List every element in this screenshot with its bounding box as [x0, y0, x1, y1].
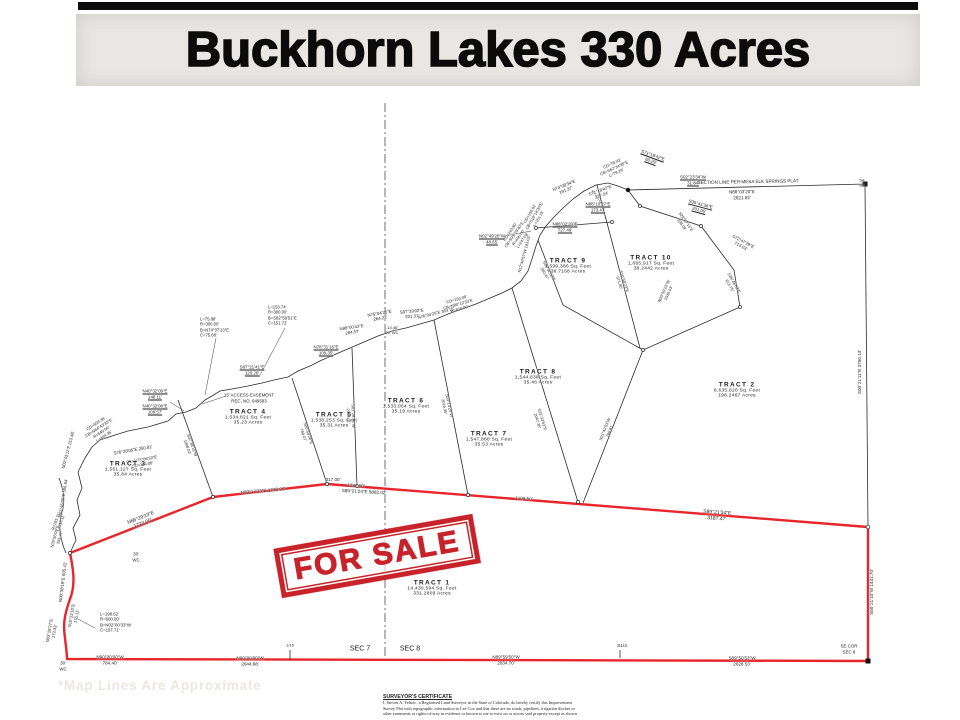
survey-label: 30' WC — [59, 661, 66, 672]
survey-label: 317.00' — [326, 477, 341, 483]
survey-label: 5|4 8|9 — [859, 178, 864, 187]
survey-label: 1/16 — [286, 644, 293, 649]
survey-label: S00°21'10"W 1441.70' — [869, 569, 875, 615]
tract-name: TRACT 1 — [407, 580, 456, 587]
survey-label: N88°10'27"E 173.47' — [586, 202, 611, 213]
survey-label: N88°03'20"E 2621.82' — [729, 189, 755, 201]
survey-label: L=153.74' R=300.00' B=S82°59'51"E C=151.… — [268, 305, 297, 326]
tract-label: TRACT 81,544,838 Sq. Feet35.46 Acres — [515, 369, 561, 386]
survey-label: N88°02'20"E 727.49' — [553, 222, 578, 233]
tract-label: TRACT 71,547,888 Sq. Feet35.53 Acres — [466, 431, 512, 448]
tract-detail: 35.19 Acres — [383, 410, 429, 415]
survey-label: SEC 8 — [400, 646, 420, 655]
tract-label: TRACT 61,533,054 Sq. Feet35.19 Acres — [383, 398, 429, 415]
survey-label: N90°00'00"W 2644.88' — [236, 655, 263, 666]
tract-name: TRACT 8 — [515, 369, 561, 376]
survey-label: 30' WC — [132, 552, 139, 563]
tract-name: TRACT 7 — [466, 431, 512, 438]
survey-label: 15' ACCESS EASEMENT REC. NO. 949583 — [224, 393, 274, 404]
survey-label: S89°21'34"E 3187.47' — [703, 509, 732, 523]
survey-label: N78°31'16"E 109.35' — [314, 345, 339, 356]
survey-linework — [0, 0, 960, 720]
tract-name: TRACT 5 — [311, 412, 357, 419]
tract-name: TRACT 9 — [545, 258, 591, 265]
tract-label: TRACT 28,635,626 Sq. Feet198.2467 Acres — [714, 382, 760, 399]
tract-name: TRACT 2 — [714, 382, 760, 389]
plat-page: Buckhorn Lakes 330 Acres — [0, 0, 960, 720]
survey-label: S87°21'41"E 120.26' — [240, 365, 265, 376]
survey-label: SE COR SEC 8 — [841, 644, 858, 655]
tract-label: TRACT 91,599,386 Sq. Feet36.7168 Acres — [545, 258, 591, 275]
survey-label: S1/4 — [617, 644, 627, 650]
tract-label: TRACT 31,561,127 Sq. Feet35.84 Acres — [105, 461, 151, 478]
tract-detail: 36.7168 Acres — [545, 270, 591, 275]
survey-label: N40°32'08"E 109.57' — [143, 404, 168, 415]
tract-detail: 35.31 Acres — [311, 424, 357, 429]
certificate-line: other easements or rights-of-way in evid… — [383, 711, 715, 717]
tract-detail: 331.2809 Acres — [407, 592, 456, 597]
map-disclaimer-watermark: *Map Lines Are Approximate — [58, 678, 262, 693]
tract-name: TRACT 10 — [628, 255, 674, 262]
tract-label: TRACT 41,534,821 Sq. Feet35.23 Acres — [225, 409, 271, 426]
tract-detail: 198.2467 Acres — [714, 394, 760, 399]
survey-label: S89°50'53"W 2628.53' — [728, 655, 755, 666]
survey-label: L=75.88' R=300.00' B=N74°07'13"E C=75.68… — [200, 317, 229, 338]
tract-detail: 35.23 Acres — [225, 421, 271, 426]
survey-label: -13.46' 20' WC — [386, 325, 399, 335]
survey-label: 1109.50' — [515, 496, 532, 503]
tract-detail: 38.2442 Acres — [628, 267, 674, 272]
survey-label: N89°59'50"W 2834.70' — [492, 654, 519, 665]
tract-label: TRACT 101,665,917 Sq. Feet38.2442 Acres — [628, 255, 674, 272]
tract-label: TRACT 51,538,253 Sq. Feet35.31 Acres — [311, 412, 357, 429]
tract-label: TRACT 114,430,594 Sq. Feet331.2809 Acres — [407, 580, 456, 597]
tract-name: TRACT 3 — [105, 461, 151, 468]
survey-label: N40°32'09"E 148.11' — [143, 389, 168, 400]
tract-name: TRACT 6 — [383, 398, 429, 405]
survey-label: S00°21'11"E 3750.13' — [857, 350, 863, 394]
tract-detail: 35.46 Acres — [515, 381, 561, 386]
survey-label: L=198.62' R=600.00' B=N02°00'33"W C=197.… — [100, 611, 131, 632]
for-sale-boundary — [64, 484, 868, 661]
tract-detail: 35.84 Acres — [105, 473, 151, 478]
surveyors-certificate: SURVEYOR'S CERTIFICATE I, Steven A. Yelt… — [383, 694, 715, 717]
survey-label: SEC 7 — [350, 646, 370, 655]
survey-label: N90°00'00"W 784.40' — [96, 654, 123, 665]
tract-name: TRACT 4 — [225, 409, 271, 416]
tract-detail: 35.53 Acres — [466, 443, 512, 448]
